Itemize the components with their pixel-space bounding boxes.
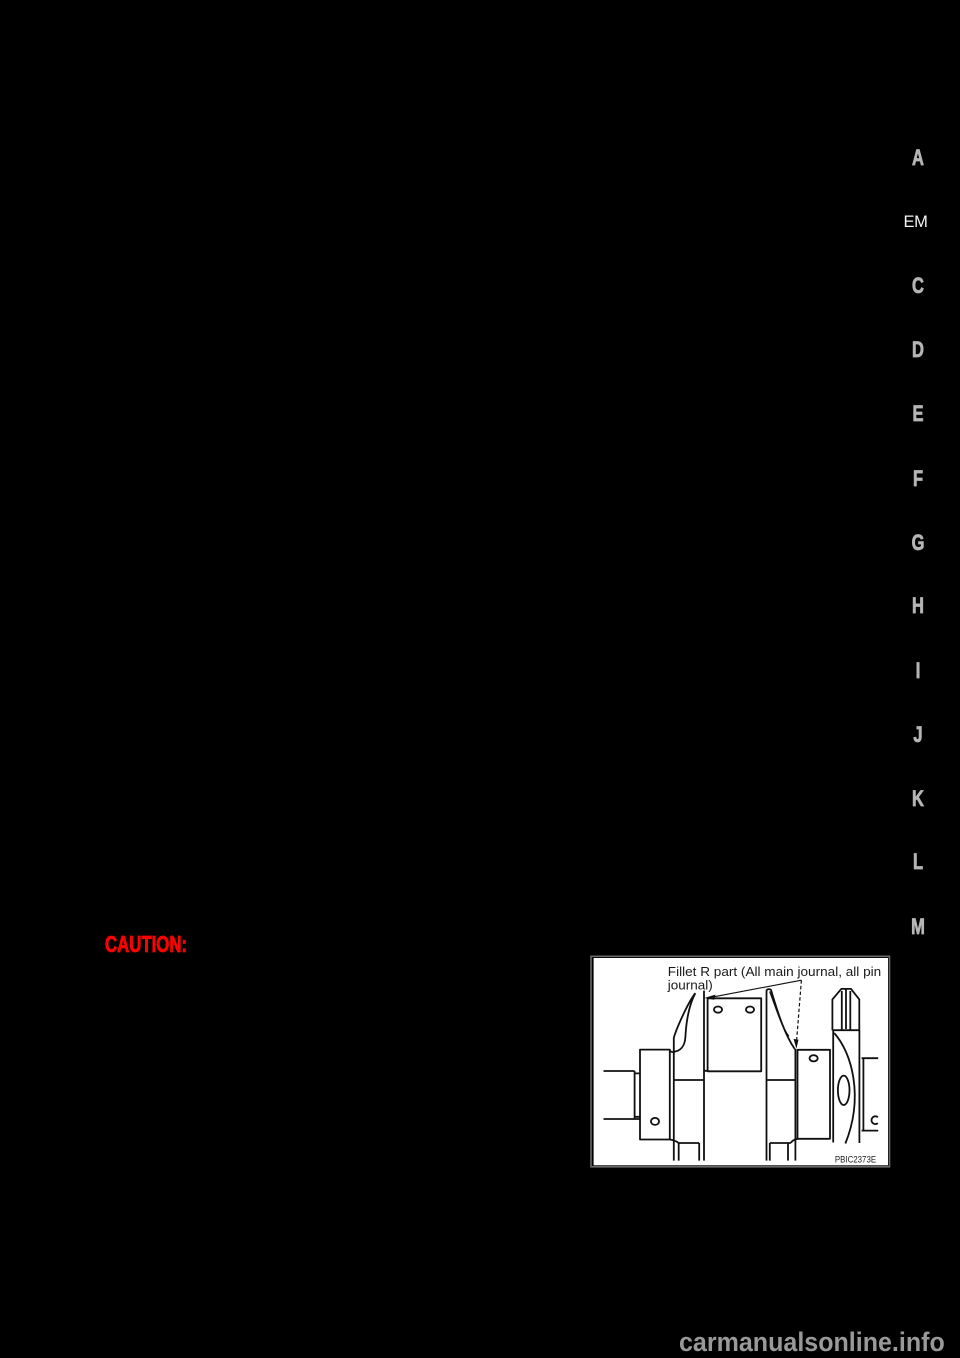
svg-text:journal): journal): [667, 978, 713, 993]
svg-text:PBIC2373E: PBIC2373E: [835, 1155, 876, 1166]
